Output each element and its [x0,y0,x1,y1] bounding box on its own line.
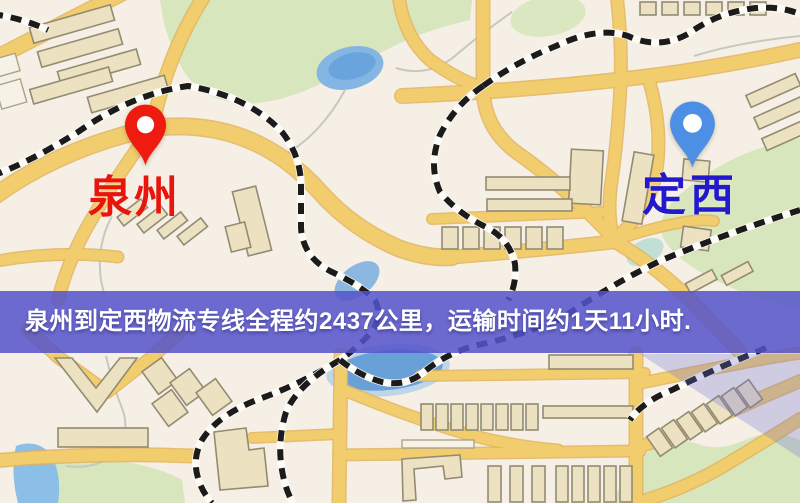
destination-label: 定西 [642,174,738,218]
basemap [0,0,800,503]
origin-pin-icon[interactable] [123,102,168,168]
map-canvas[interactable]: 泉州 定西 泉州到定西物流专线全程约2437公里，运输时间约1天11小时. [0,0,800,503]
origin-label: 泉州 [88,176,180,220]
route-banner: 泉州到定西物流专线全程约2437公里，运输时间约1天11小时. [0,291,800,353]
destination-pin-icon[interactable] [668,99,717,170]
route-banner-text: 泉州到定西物流专线全程约2437公里，运输时间约1天11小时. [0,291,800,353]
